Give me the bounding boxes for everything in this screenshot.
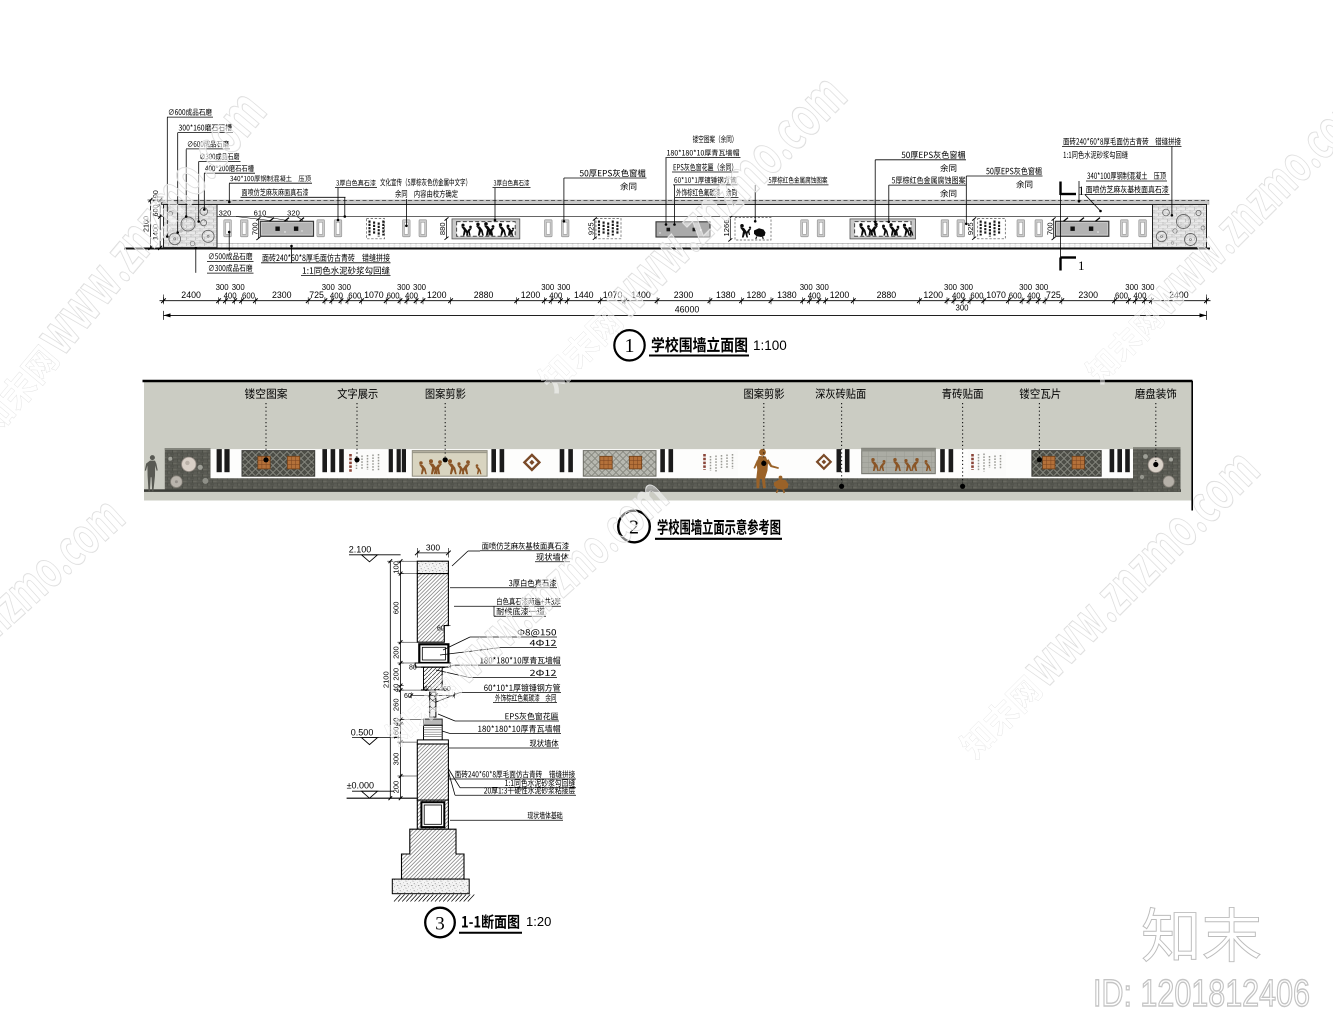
svg-text:300: 300 <box>557 283 571 292</box>
svg-text:300: 300 <box>816 283 830 292</box>
svg-text:2300: 2300 <box>1078 290 1098 300</box>
svg-text:1200: 1200 <box>923 290 943 300</box>
svg-text:1070: 1070 <box>364 290 384 300</box>
svg-text:600: 600 <box>387 291 401 300</box>
svg-text:1380: 1380 <box>777 290 797 300</box>
svg-text:60: 60 <box>404 693 412 700</box>
svg-text:610: 610 <box>254 209 267 218</box>
svg-text:200: 200 <box>392 668 401 681</box>
svg-text:300: 300 <box>413 283 427 292</box>
svg-text:1200: 1200 <box>830 290 850 300</box>
svg-text:600: 600 <box>392 602 401 615</box>
svg-text:400: 400 <box>1027 291 1041 300</box>
svg-text:400: 400 <box>808 291 822 300</box>
svg-text:880: 880 <box>438 222 447 235</box>
svg-text:1200: 1200 <box>521 290 541 300</box>
svg-text:200: 200 <box>392 781 401 794</box>
svg-text:300: 300 <box>1141 283 1155 292</box>
svg-text:400: 400 <box>224 291 238 300</box>
svg-text:1:20: 1:20 <box>526 914 551 929</box>
svg-text:200: 200 <box>392 646 401 659</box>
svg-text:600: 600 <box>348 291 362 300</box>
svg-text:725: 725 <box>1046 290 1061 300</box>
svg-text:400: 400 <box>1133 291 1147 300</box>
svg-text:80: 80 <box>409 665 417 672</box>
svg-text:2100: 2100 <box>381 671 390 688</box>
svg-text:700: 700 <box>1046 222 1055 235</box>
svg-text:2880: 2880 <box>474 290 494 300</box>
svg-text:1070: 1070 <box>986 290 1006 300</box>
svg-text:2300: 2300 <box>674 290 694 300</box>
svg-text:400: 400 <box>405 291 419 300</box>
svg-text:1200: 1200 <box>427 290 447 300</box>
svg-text:600: 600 <box>1009 291 1023 300</box>
svg-text:1440: 1440 <box>574 290 594 300</box>
svg-text:1380: 1380 <box>716 290 736 300</box>
svg-text:100: 100 <box>392 561 401 574</box>
svg-text:2880: 2880 <box>877 290 897 300</box>
svg-text:320: 320 <box>219 209 232 218</box>
svg-text:700: 700 <box>250 222 259 235</box>
svg-text:46000: 46000 <box>675 304 700 314</box>
svg-text:2.100: 2.100 <box>349 544 372 554</box>
svg-text:1: 1 <box>1078 183 1085 198</box>
svg-text:2400: 2400 <box>181 290 201 300</box>
svg-text:60: 60 <box>437 626 445 633</box>
svg-text:600: 600 <box>970 291 984 300</box>
svg-text:2300: 2300 <box>272 290 292 300</box>
svg-text:400: 400 <box>952 291 966 300</box>
svg-text:300: 300 <box>392 753 401 766</box>
svg-text:400: 400 <box>330 291 344 300</box>
svg-text:925: 925 <box>587 222 596 235</box>
svg-text:0.500: 0.500 <box>351 727 374 737</box>
svg-text:600: 600 <box>1115 291 1129 300</box>
svg-text:1280: 1280 <box>747 290 767 300</box>
svg-text:±0.000: ±0.000 <box>347 780 374 790</box>
svg-text:1: 1 <box>1078 258 1085 273</box>
svg-text:600: 600 <box>242 291 256 300</box>
svg-text:400: 400 <box>549 291 563 300</box>
svg-text:300: 300 <box>426 542 440 552</box>
svg-text:300: 300 <box>955 304 969 313</box>
svg-text:3: 3 <box>435 914 445 935</box>
svg-text:320: 320 <box>287 209 300 218</box>
svg-text:260: 260 <box>392 698 401 711</box>
svg-text:1: 1 <box>625 335 635 357</box>
svg-text:1:100: 1:100 <box>753 338 787 353</box>
svg-text:40: 40 <box>392 684 401 692</box>
svg-text:ID: 1201812406: ID: 1201812406 <box>1093 973 1310 1015</box>
